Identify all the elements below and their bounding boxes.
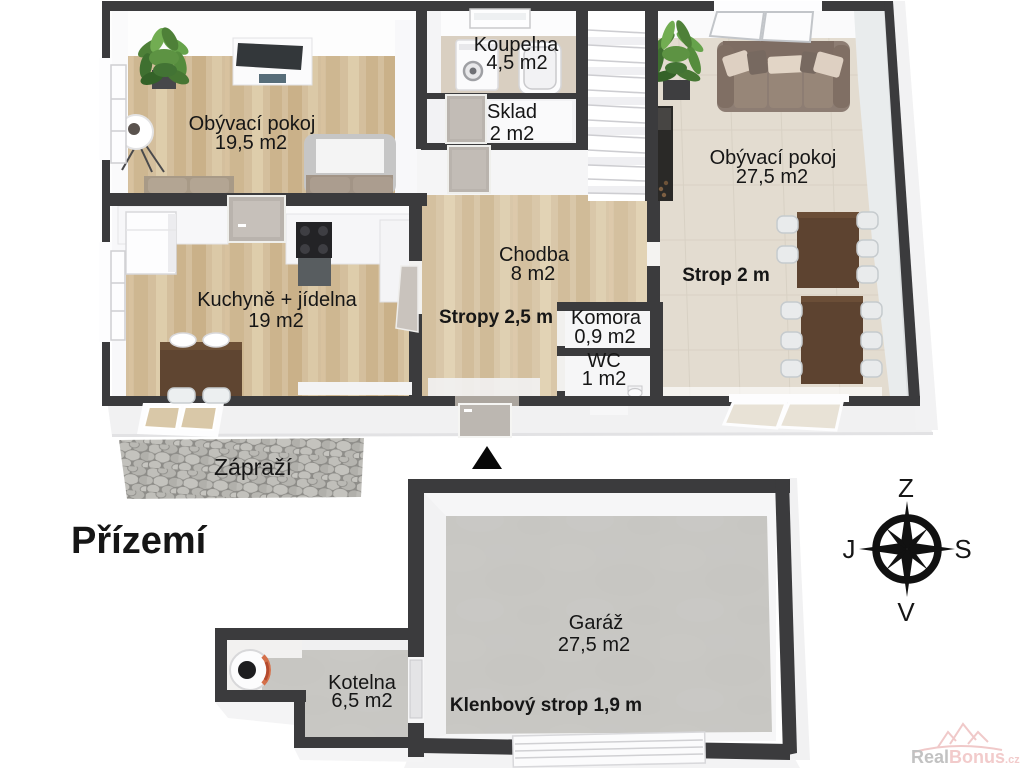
svg-text:6,5 m2: 6,5 m2: [331, 690, 392, 712]
svg-text:Zápraží: Zápraží: [214, 454, 293, 480]
svg-text:0,9 m2: 0,9 m2: [574, 326, 635, 348]
svg-text:27,5 m2: 27,5 m2: [736, 166, 808, 188]
svg-text:1 m2: 1 m2: [582, 368, 626, 390]
svg-text:Klenbový strop 1,9 m: Klenbový strop 1,9 m: [450, 695, 642, 716]
svg-text:RealBonus.cz: RealBonus.cz: [911, 747, 1020, 767]
svg-text:19 m2: 19 m2: [248, 310, 304, 332]
svg-text:4,5 m2: 4,5 m2: [486, 52, 547, 74]
svg-text:Kuchyně + jídelna: Kuchyně + jídelna: [197, 289, 357, 311]
svg-text:2 m2: 2 m2: [490, 123, 534, 145]
svg-text:J: J: [843, 534, 856, 564]
svg-text:Přízemí: Přízemí: [71, 520, 208, 562]
svg-text:V: V: [897, 597, 915, 627]
svg-text:27,5 m2: 27,5 m2: [558, 634, 630, 656]
svg-text:Strop 2 m: Strop 2 m: [682, 265, 770, 286]
svg-text:Z: Z: [898, 473, 914, 503]
svg-text:19,5 m2: 19,5 m2: [215, 132, 287, 154]
svg-text:S: S: [954, 534, 971, 564]
svg-text:Sklad: Sklad: [487, 101, 537, 123]
svg-text:Stropy 2,5 m: Stropy 2,5 m: [439, 307, 553, 328]
svg-text:8 m2: 8 m2: [511, 263, 555, 285]
svg-text:Garáž: Garáž: [569, 612, 623, 634]
